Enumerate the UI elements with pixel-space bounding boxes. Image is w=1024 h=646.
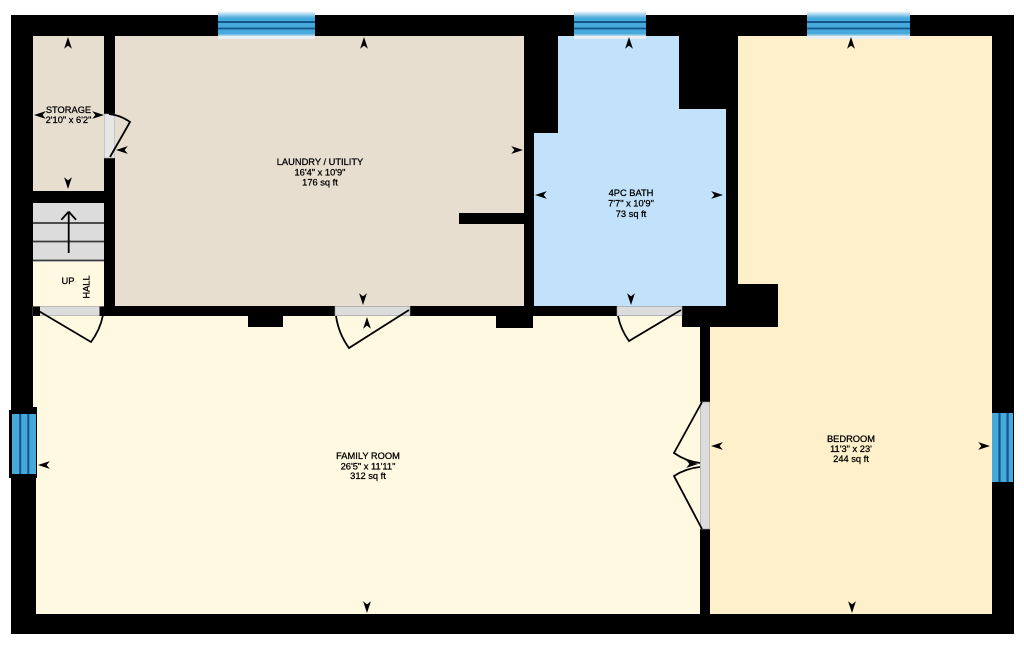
svg-text:73 sq ft: 73 sq ft (616, 209, 647, 219)
svg-text:FAMILY ROOM: FAMILY ROOM (336, 451, 400, 461)
svg-text:STORAGE: STORAGE (46, 105, 91, 115)
svg-text:UP: UP (62, 276, 75, 286)
svg-text:244 sq ft: 244 sq ft (833, 454, 869, 464)
svg-text:26'5" x 11'11": 26'5" x 11'11" (341, 461, 396, 471)
svg-text:176 sq ft: 176 sq ft (302, 178, 338, 188)
svg-text:7'7" x 10'9": 7'7" x 10'9" (608, 199, 654, 209)
svg-text:LAUNDRY / UTILITY: LAUNDRY / UTILITY (277, 157, 363, 167)
svg-text:BEDROOM: BEDROOM (827, 434, 875, 444)
svg-text:2'10" x 6'2": 2'10" x 6'2" (46, 115, 92, 125)
svg-text:16'4" x 10'9": 16'4" x 10'9" (295, 167, 346, 177)
svg-text:312 sq ft: 312 sq ft (350, 471, 386, 481)
svg-text:HALL: HALL (82, 275, 92, 298)
svg-text:11'3" x 23': 11'3" x 23' (830, 444, 872, 454)
svg-text:4PC BATH: 4PC BATH (609, 188, 654, 198)
